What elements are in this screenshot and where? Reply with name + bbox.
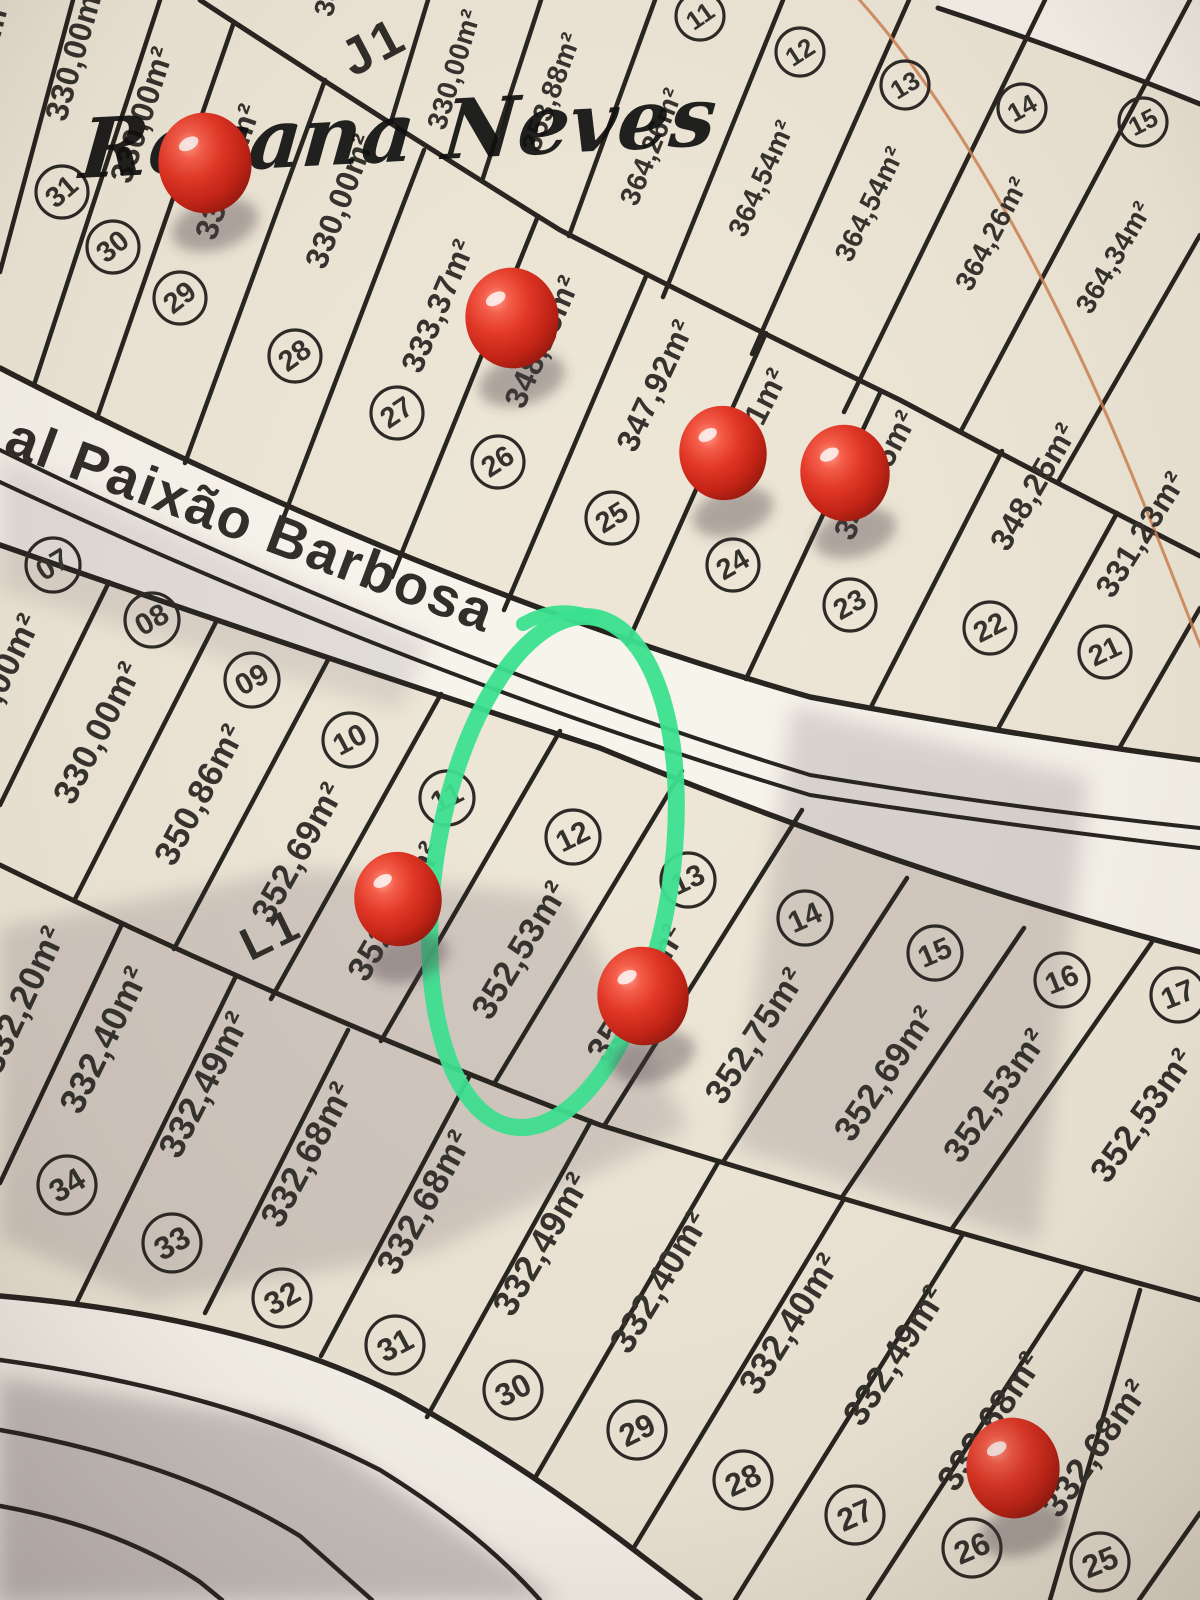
photo-vignette (0, 0, 1200, 1600)
map-photo: 330,00m²330,00m²31330,00m²30330,00m²2933… (0, 0, 1200, 1600)
plot-map: 330,00m²330,00m²31330,00m²30330,00m²2933… (0, 0, 1200, 1600)
